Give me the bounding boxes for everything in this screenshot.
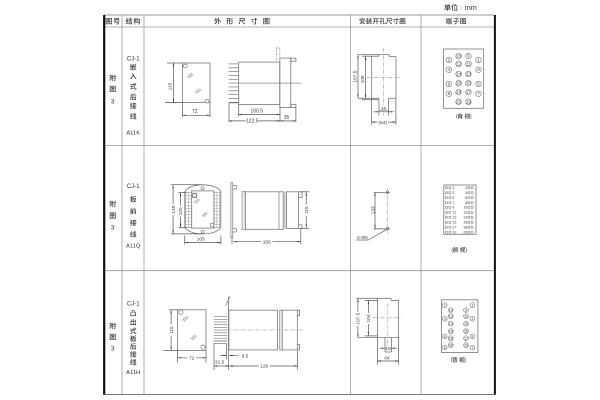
svg-text:35: 35 [284, 115, 290, 121]
svg-text:10: 10 [463, 206, 467, 210]
svg-text:16: 16 [449, 330, 453, 334]
svg-text:CJ-1: CJ-1 [127, 56, 140, 62]
svg-text:64: 64 [384, 355, 390, 361]
svg-text:18: 18 [456, 90, 461, 95]
svg-text:): ) [470, 114, 472, 120]
svg-text:15: 15 [466, 81, 471, 86]
svg-text:5: 5 [452, 196, 454, 200]
svg-text:19: 19 [464, 344, 468, 348]
svg-text:9: 9 [465, 308, 467, 312]
svg-text:19: 19 [452, 230, 456, 234]
svg-text:18: 18 [463, 225, 467, 229]
svg-text:7: 7 [452, 201, 454, 205]
svg-text:104: 104 [366, 314, 372, 322]
svg-text:17: 17 [452, 225, 456, 229]
svg-text:105: 105 [360, 75, 366, 83]
svg-text:13: 13 [452, 216, 456, 220]
svg-text:107.5: 107.5 [356, 312, 362, 324]
svg-text:3: 3 [111, 98, 115, 105]
svg-text:20: 20 [456, 99, 461, 104]
svg-text:31.5: 31.5 [215, 360, 225, 366]
svg-text:CJ-1: CJ-1 [127, 184, 140, 190]
svg-text:10: 10 [449, 308, 453, 312]
svg-text:1: 1 [471, 304, 473, 308]
svg-text:115: 115 [169, 326, 175, 334]
svg-text:3: 3 [111, 345, 115, 352]
svg-text:16: 16 [386, 346, 392, 352]
svg-text:105: 105 [197, 237, 205, 243]
svg-text:7: 7 [471, 346, 473, 350]
svg-text:14: 14 [456, 71, 461, 76]
svg-text:16: 16 [463, 221, 467, 225]
svg-text:122.5: 122.5 [246, 119, 259, 125]
svg-text:3: 3 [111, 224, 115, 231]
svg-text:15: 15 [464, 330, 468, 334]
svg-text:17: 17 [466, 90, 471, 95]
svg-text:156: 156 [263, 239, 271, 245]
svg-text:16: 16 [381, 106, 387, 112]
svg-text:10: 10 [456, 54, 461, 59]
svg-text:125: 125 [178, 207, 184, 215]
svg-text:72: 72 [192, 109, 198, 115]
svg-text:CJ-1: CJ-1 [127, 302, 140, 308]
svg-text:18: 18 [449, 337, 453, 341]
svg-text:12: 12 [463, 211, 467, 215]
svg-text:mm: mm [465, 3, 477, 12]
svg-text:3: 3 [452, 191, 454, 195]
svg-text:12: 12 [456, 61, 461, 66]
svg-text:6: 6 [444, 335, 446, 339]
svg-text:107.5: 107.5 [352, 70, 358, 82]
svg-text:2: 2 [444, 304, 446, 308]
svg-text:149: 149 [171, 205, 177, 213]
svg-text:5: 5 [471, 335, 473, 339]
svg-text:(: ( [451, 248, 453, 254]
svg-text:16: 16 [456, 81, 461, 86]
svg-text:(: ( [456, 114, 458, 120]
svg-text:8: 8 [465, 201, 467, 205]
svg-text:13: 13 [464, 322, 468, 326]
svg-text:6: 6 [465, 196, 467, 200]
svg-text:A11Q: A11Q [126, 244, 141, 250]
svg-text:115: 115 [168, 82, 174, 90]
svg-text:4: 4 [444, 317, 446, 321]
svg-text:3: 3 [471, 317, 473, 321]
svg-text:72: 72 [189, 355, 195, 361]
svg-text:(64): (64) [379, 120, 388, 126]
svg-text:11: 11 [466, 61, 471, 66]
svg-text:9: 9 [452, 206, 454, 210]
svg-text:12: 12 [449, 315, 453, 319]
svg-text:20: 20 [449, 344, 453, 348]
svg-text:): ) [464, 358, 466, 364]
svg-text:20: 20 [463, 230, 467, 234]
svg-text:): ) [465, 248, 467, 254]
svg-text:15: 15 [452, 221, 456, 225]
svg-text:126: 126 [260, 363, 268, 369]
svg-text:A11H: A11H [126, 370, 140, 376]
svg-text:14: 14 [449, 322, 453, 326]
svg-text:13: 13 [466, 71, 471, 76]
svg-text:17: 17 [464, 337, 468, 341]
svg-text:14: 14 [463, 216, 467, 220]
svg-text::: : [460, 5, 462, 12]
svg-text:A11K: A11K [126, 131, 140, 137]
svg-text:115: 115 [304, 206, 310, 214]
svg-text:100.5: 100.5 [251, 109, 264, 115]
svg-text:11: 11 [452, 211, 456, 215]
svg-text:8: 8 [444, 346, 446, 350]
svg-text:(: ( [451, 358, 453, 364]
svg-text:2-Φ5: 2-Φ5 [357, 235, 368, 241]
svg-text:1: 1 [452, 186, 454, 190]
svg-text:2: 2 [465, 186, 467, 190]
svg-text:11: 11 [464, 315, 468, 319]
svg-text:9.5: 9.5 [242, 353, 249, 359]
svg-text:19: 19 [466, 99, 471, 104]
svg-text:4: 4 [465, 191, 467, 195]
svg-text:133: 133 [370, 206, 376, 214]
